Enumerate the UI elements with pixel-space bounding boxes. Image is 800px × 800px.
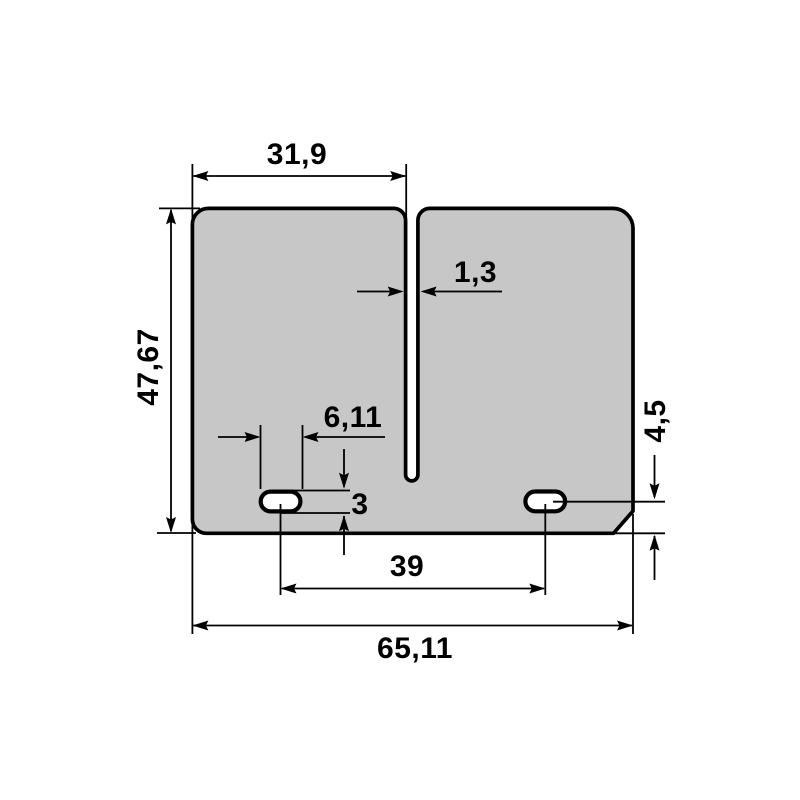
svg-text:6,11: 6,11 <box>324 401 383 434</box>
svg-text:3: 3 <box>351 488 368 521</box>
svg-text:31,9: 31,9 <box>267 138 327 171</box>
svg-text:47,67: 47,67 <box>132 328 165 406</box>
svg-text:39: 39 <box>390 550 424 583</box>
svg-text:4,5: 4,5 <box>639 399 672 442</box>
svg-text:1,3: 1,3 <box>454 256 497 289</box>
svg-text:65,11: 65,11 <box>377 632 453 665</box>
